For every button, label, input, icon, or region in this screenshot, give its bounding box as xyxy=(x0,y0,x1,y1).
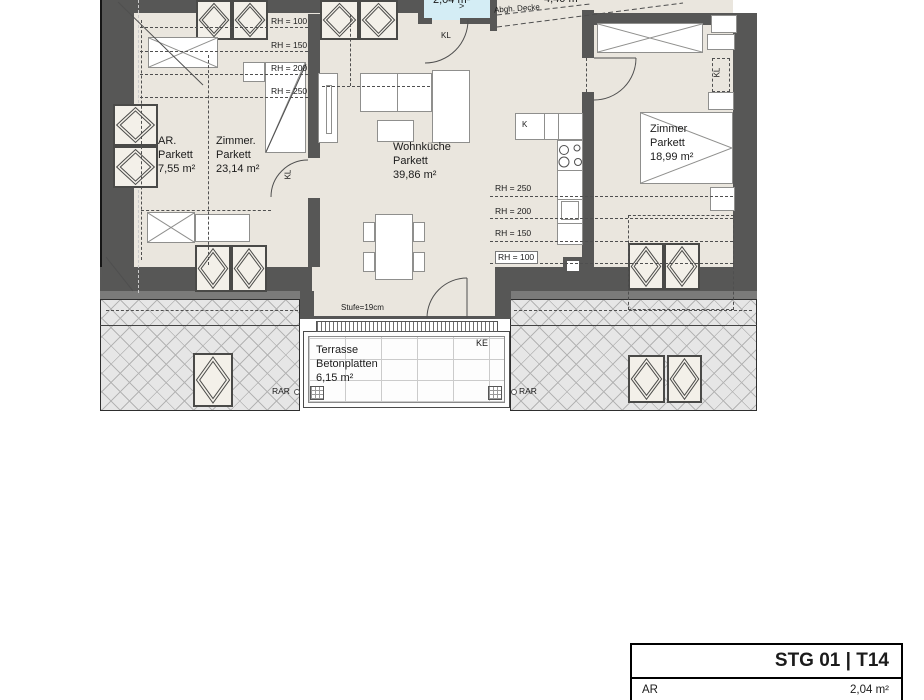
roof-window-icon xyxy=(320,0,359,40)
wall-bottom-left-face xyxy=(100,291,312,299)
title-block-title: STG 01 | T14 xyxy=(632,645,901,679)
bed-left xyxy=(265,62,306,153)
roof-window-icon xyxy=(193,353,233,407)
wardrobe xyxy=(147,212,195,243)
terrace-drain-right xyxy=(488,386,502,400)
room-label-flur-area: 4,40 m² xyxy=(544,0,581,6)
tall-cabinet xyxy=(318,73,338,143)
wall-mid-left-lower xyxy=(308,198,320,267)
wall-top-a xyxy=(132,0,196,13)
room-area: 23,14 m² xyxy=(216,162,259,176)
rh-label: RH = 100 xyxy=(495,251,538,264)
roof-dash-left xyxy=(106,310,298,311)
sofa-back xyxy=(360,73,432,112)
room-name: Wohnküche xyxy=(393,140,451,154)
door-flank-right xyxy=(495,291,511,319)
title-block-row-value: 2,04 m² xyxy=(850,684,889,696)
rh-label: RH = 150 xyxy=(271,40,307,50)
roof-window-icon xyxy=(359,0,398,40)
room-label-zimmer-right: Zimmer Parkett 18,99 m² xyxy=(650,122,693,164)
room-label-ar: AR. Parkett 7,55 m² xyxy=(158,134,195,176)
roof-edge-line-right xyxy=(510,325,757,326)
ceiling-dash xyxy=(350,14,351,86)
room-area: 39,86 m² xyxy=(393,168,451,182)
counter-divider xyxy=(558,114,559,140)
wet-room-wall-bottom-b xyxy=(460,18,497,24)
rh-line xyxy=(140,97,308,98)
wall-right xyxy=(733,15,757,298)
rar-label: RAR xyxy=(519,386,537,396)
chair xyxy=(413,222,425,242)
cabinet-detail xyxy=(326,85,332,134)
kl-label: KL xyxy=(712,68,721,78)
rh-label: RH = 150 xyxy=(495,228,531,238)
ceiling-dash xyxy=(141,20,142,260)
nightstand xyxy=(710,187,735,211)
kitchen-column xyxy=(557,140,583,245)
stufe-label: Stufe=19cm xyxy=(341,303,384,312)
door-flank-left xyxy=(300,291,314,319)
title-block-row-label: AR xyxy=(642,684,658,696)
roof-dash-right xyxy=(514,310,752,311)
roof-window-icon xyxy=(628,355,665,403)
roof-window-icon xyxy=(113,104,158,146)
room-floor: Parkett xyxy=(650,136,693,150)
roof-window-icon xyxy=(667,355,702,403)
chair xyxy=(363,252,375,272)
rh-line xyxy=(140,27,308,28)
nightstand xyxy=(708,92,734,110)
wall-top-b xyxy=(268,0,320,13)
room-floor: Parkett xyxy=(216,148,259,162)
room-floor: Betonplatten xyxy=(316,357,378,371)
room-area: 7,55 m² xyxy=(158,162,195,176)
chair xyxy=(413,252,425,272)
roof-window-icon xyxy=(231,245,267,292)
kitchen-divider xyxy=(558,199,583,200)
room-label-zimmer-left: Zimmer. Parkett 23,14 m² xyxy=(216,134,259,176)
wet-room-wall-bottom-a xyxy=(418,18,432,24)
ceiling-dash xyxy=(141,210,271,211)
counter-divider xyxy=(544,114,545,140)
roof-window-icon xyxy=(195,245,231,292)
wardrobe xyxy=(597,23,703,53)
rh-label: RH = 100 xyxy=(271,16,307,26)
room-label-bad-area: 2,04 m² xyxy=(433,0,470,7)
rar-label: RAR xyxy=(272,386,290,396)
room-name: AR. xyxy=(158,134,195,148)
shaft-box xyxy=(707,34,735,50)
title-block-row: AR 2,04 m² xyxy=(632,679,901,696)
shaft-box xyxy=(711,15,737,33)
rh-label: RH = 200 xyxy=(271,63,307,73)
rar-marker-left xyxy=(294,389,300,395)
room-name: Terrasse xyxy=(316,343,378,357)
rh-label: RH = 250 xyxy=(271,86,307,96)
room-floor: Parkett xyxy=(393,154,451,168)
rar-marker-right xyxy=(511,389,517,395)
glass-front-line xyxy=(312,316,498,319)
sofa-chaise xyxy=(432,70,470,143)
room-label-terrasse: Terrasse Betonplatten 6,15 m² xyxy=(316,343,378,385)
dining-table xyxy=(375,214,413,280)
floor-plan-canvas: AR. Parkett 7,55 m² Zimmer. Parkett 23,1… xyxy=(0,0,924,700)
kl-label: KL xyxy=(441,31,451,40)
kitchen-label: K xyxy=(522,120,527,129)
ceiling-dash xyxy=(322,86,430,87)
roof-edge-line-left xyxy=(100,325,300,326)
roof-window-projection xyxy=(628,215,734,310)
rh-label: RH = 200 xyxy=(495,206,531,216)
rh-label: RH = 250 xyxy=(495,183,531,193)
dresser xyxy=(195,214,250,242)
roof-window-icon xyxy=(232,0,268,40)
sofa-divider xyxy=(397,74,398,112)
kitchen-divider xyxy=(558,170,583,171)
ke-label: KE xyxy=(476,338,488,348)
room-floor: Parkett xyxy=(158,148,195,162)
coffee-table xyxy=(377,120,414,142)
kitchen-divider xyxy=(558,223,583,224)
room-area: 18,99 m² xyxy=(650,150,693,164)
room-name: Zimmer xyxy=(650,122,693,136)
room-label-wohnkueche: Wohnküche Parkett 39,86 m² xyxy=(393,140,451,182)
terrace-drain-left xyxy=(310,386,324,400)
rh-line xyxy=(140,74,308,75)
door-opening-dash xyxy=(586,58,587,92)
room-divider-dash xyxy=(208,55,209,265)
chair xyxy=(363,222,375,242)
title-block: STG 01 | T14 AR 2,04 m² xyxy=(630,643,903,700)
room-area: 6,15 m² xyxy=(316,371,378,385)
kl-label: KL xyxy=(283,170,292,180)
vent-arrow: > xyxy=(459,1,464,11)
nightstand xyxy=(243,62,265,82)
roof-window-icon xyxy=(196,0,232,40)
kitchen-shaft xyxy=(563,257,583,275)
rh-line xyxy=(140,51,308,52)
roof-window-icon xyxy=(113,146,158,188)
room-name: Zimmer. xyxy=(216,134,259,148)
rh-line xyxy=(490,196,733,197)
threshold-grate xyxy=(316,321,498,332)
